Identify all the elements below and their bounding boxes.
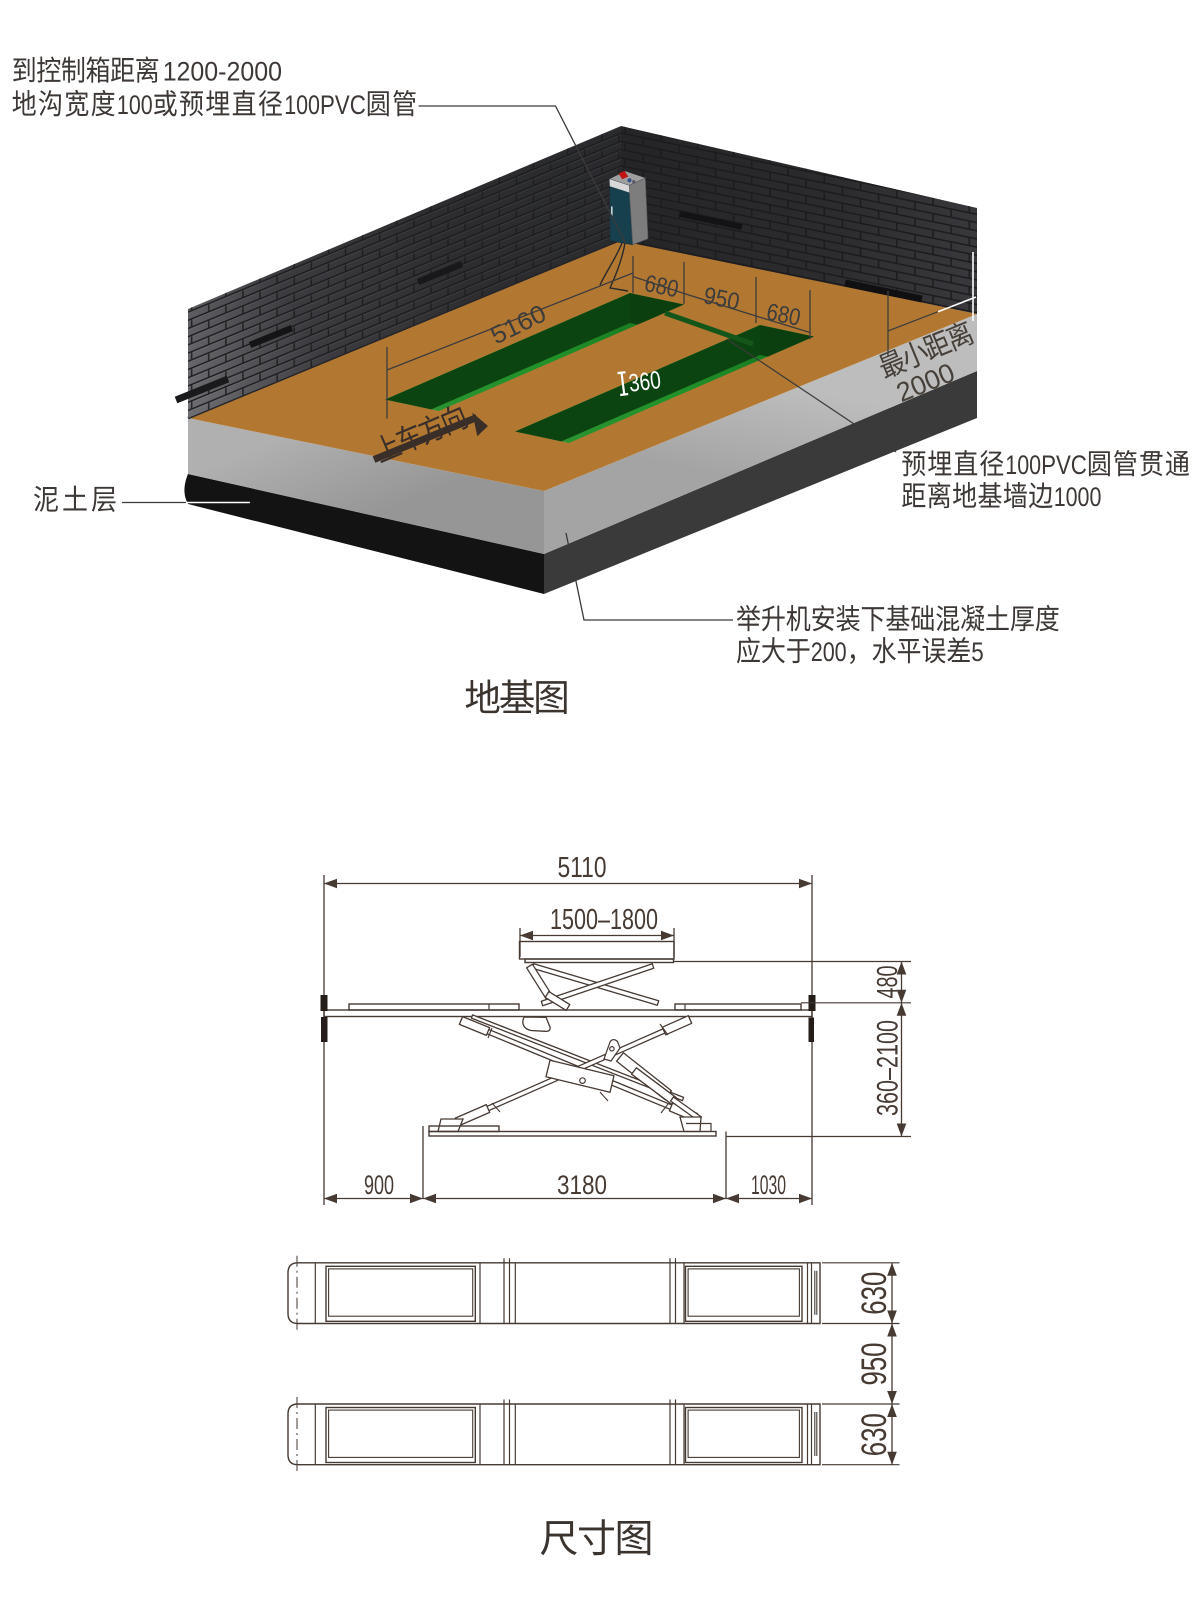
svg-text:5110: 5110 xyxy=(558,852,607,884)
svg-text:1000: 1000 xyxy=(1054,482,1102,512)
svg-text:630: 630 xyxy=(855,1413,894,1456)
svg-text:3180: 3180 xyxy=(557,1170,607,1200)
svg-text:360–2100: 360–2100 xyxy=(872,1020,905,1116)
svg-text:1030: 1030 xyxy=(751,1170,786,1200)
svg-text:200: 200 xyxy=(811,637,847,667)
svg-text:630: 630 xyxy=(855,1272,894,1315)
svg-text:1500–1800: 1500–1800 xyxy=(550,904,658,936)
svg-text:480: 480 xyxy=(872,966,904,999)
svg-text:5: 5 xyxy=(971,637,984,667)
svg-text:1200-2000: 1200-2000 xyxy=(163,57,282,87)
svg-text:360: 360 xyxy=(627,366,662,398)
svg-text:100: 100 xyxy=(117,90,153,120)
svg-text:950: 950 xyxy=(855,1343,894,1386)
svg-text:PVC: PVC xyxy=(1041,450,1087,480)
svg-text:100: 100 xyxy=(284,90,320,120)
svg-text:900: 900 xyxy=(364,1170,394,1200)
svg-text:PVC: PVC xyxy=(320,90,366,120)
svg-text:100: 100 xyxy=(1005,450,1041,480)
